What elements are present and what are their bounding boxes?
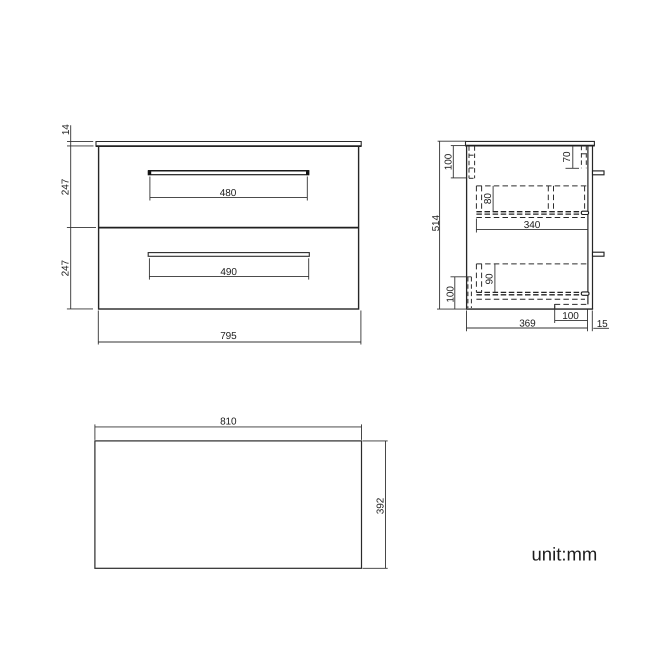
svg-text:100: 100: [444, 153, 455, 170]
svg-text:392: 392: [376, 497, 387, 514]
svg-text:80: 80: [483, 193, 494, 204]
svg-text:480: 480: [220, 188, 237, 199]
svg-text:90: 90: [485, 273, 496, 284]
svg-text:unit:mm: unit:mm: [532, 544, 598, 565]
svg-text:514: 514: [431, 214, 442, 231]
svg-text:100: 100: [562, 311, 579, 322]
svg-text:340: 340: [524, 220, 541, 231]
svg-text:490: 490: [220, 267, 237, 278]
svg-text:100: 100: [445, 286, 456, 303]
svg-text:795: 795: [220, 331, 237, 342]
svg-text:14: 14: [61, 124, 72, 135]
svg-text:369: 369: [519, 319, 536, 330]
svg-text:15: 15: [597, 319, 608, 330]
svg-text:810: 810: [220, 416, 237, 427]
svg-text:247: 247: [61, 178, 72, 195]
svg-text:70: 70: [562, 151, 573, 162]
svg-text:247: 247: [61, 259, 72, 276]
